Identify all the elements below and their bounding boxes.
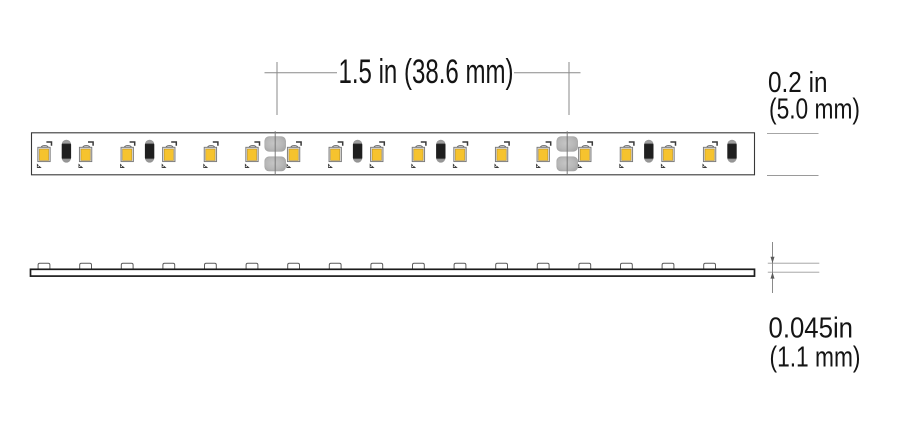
svg-text:0.045in: 0.045in (769, 313, 854, 345)
svg-text:(1.1 mm): (1.1 mm) (770, 342, 861, 374)
svg-text:(5.0 mm): (5.0 mm) (769, 94, 860, 126)
svg-text:1.5 in (38.6 mm): 1.5 in (38.6 mm) (339, 53, 514, 91)
